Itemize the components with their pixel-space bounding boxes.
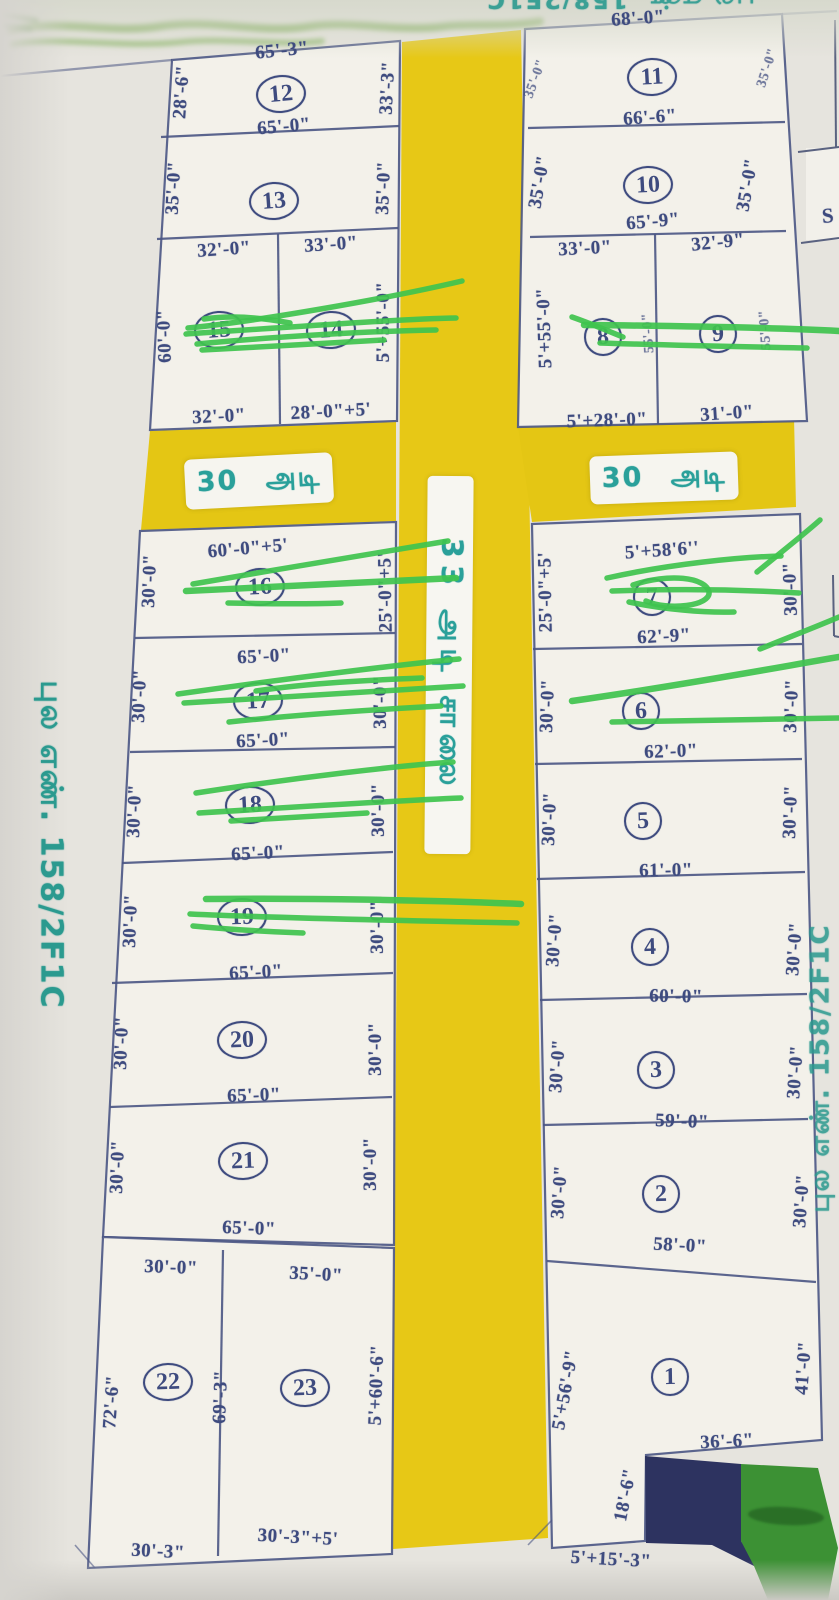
p9-right-dim: 55'-0" xyxy=(757,309,776,350)
p3-bottom-dim: 59'-0" xyxy=(655,1110,709,1134)
p2-right-dim: 30'-0" xyxy=(789,1173,815,1228)
p22-left-dim: 72'-6" xyxy=(99,1374,125,1429)
p2-bottom-dim: 58'-0" xyxy=(653,1234,708,1259)
p17-right-dim: 30'-0" xyxy=(370,675,392,729)
p19-number-text: 19 xyxy=(230,903,255,931)
left-survey-number: புல எண். 158/2F1C xyxy=(30,681,69,1010)
p8-inner-dim: 55'-0" xyxy=(640,312,659,353)
p14-number-text: 14 xyxy=(318,316,344,345)
p10-number-text: 10 xyxy=(635,171,660,199)
p15-left-dim: 60'-0" xyxy=(153,309,177,363)
p23-top-dim: 35'-0" xyxy=(289,1263,344,1288)
p19-left-dim: 30'-0" xyxy=(119,894,143,948)
p11-number-text: 11 xyxy=(640,63,664,91)
p1-right-dim: 41'-0" xyxy=(791,1340,817,1395)
right-survey-number: புல எண். 158/2F1C xyxy=(806,923,839,1212)
p20-right-dim: 30'-0" xyxy=(365,1022,387,1076)
p6-bottom-dim: 62'-0" xyxy=(644,740,698,764)
p14-bottom-dim: 28'-0"+5' xyxy=(290,399,372,425)
p21-right-dim: 30'-0" xyxy=(360,1137,382,1191)
p19-bottom-dim: 65'-0" xyxy=(229,961,284,986)
green-structure xyxy=(741,1464,838,1600)
p21-bottom-dim: 65'-0" xyxy=(222,1217,276,1241)
p13-right-dim: 35'-0" xyxy=(372,161,396,215)
p9-bottom-dim: 31'-0" xyxy=(699,401,754,427)
p11-bottom-dim: 66'-6" xyxy=(622,105,677,131)
p7-left-dim: 25'-0"+5' xyxy=(534,551,557,632)
p4-number-text: 4 xyxy=(644,933,657,960)
p5-right-dim: 30'-0" xyxy=(779,785,803,839)
p1-inner-width-dim: 36'-6" xyxy=(700,1430,755,1455)
p9-number-text: 9 xyxy=(711,320,724,348)
cross-road-left-label: 30 அடி xyxy=(184,452,334,510)
p13-left-dim: 35'-0" xyxy=(162,161,187,216)
p6-right-dim: 30'-0" xyxy=(780,679,804,733)
p8-left-dim: 5'+55'-0" xyxy=(533,287,558,368)
p4-bottom-dim: 60'-0" xyxy=(649,986,703,1009)
p19-right-dim: 30'-0" xyxy=(367,900,389,954)
p23-bottom-dim: 30'-3"+5' xyxy=(257,1525,339,1551)
p13-number-text: 13 xyxy=(261,187,287,216)
p18-left-dim: 30'-0" xyxy=(123,784,147,838)
p17-left-dim: 30'-0" xyxy=(128,669,152,723)
p1-bottom-dim: 5'+15'-3" xyxy=(570,1547,652,1573)
p6-left-dim: 30'-0" xyxy=(536,679,560,733)
p18-number-text: 18 xyxy=(237,791,262,819)
p16-number-text: 16 xyxy=(247,573,272,601)
p14-top-dim: 33'-0" xyxy=(303,232,358,258)
p18-right-dim: 30'-0" xyxy=(368,783,390,837)
p7-right-dim: 30'-0" xyxy=(779,562,803,616)
p22-right-dim: 69'-3" xyxy=(209,1370,233,1424)
p7-bottom-dim: 62'-9" xyxy=(637,625,692,650)
p12-left-dim: 28'-6" xyxy=(169,64,195,119)
p22-bottom-dim: 30'-3" xyxy=(131,1540,186,1565)
p7-number-text: 7 xyxy=(645,583,658,611)
p8-number-text: 8 xyxy=(597,323,610,350)
p22-number-text: 22 xyxy=(156,1368,181,1396)
p12-right-dim: 33'-3" xyxy=(376,61,401,116)
p11-top-dim: 68'-0" xyxy=(610,6,665,32)
right-edge-marks xyxy=(798,20,839,637)
cross-road-right-label: 30 அடி xyxy=(589,451,739,504)
p2-left-dim: 30'-0" xyxy=(547,1164,573,1219)
p21-left-dim: 30'-0" xyxy=(106,1140,130,1194)
p18-bottom-dim: 65'-0" xyxy=(231,842,286,867)
p5-bottom-dim: 61'-0" xyxy=(639,860,693,883)
p17-top-dim: 65'-0" xyxy=(237,645,292,670)
p17-number-text: 17 xyxy=(245,687,270,715)
p12-number-text: 12 xyxy=(268,80,294,109)
p3-left-dim: 30'-0" xyxy=(545,1038,571,1093)
p15-number-text: 15 xyxy=(206,316,232,345)
p8-bottom-dim: 5'+28'-0" xyxy=(566,409,647,434)
p14-right-dim: 5'+55'-0" xyxy=(373,282,395,363)
p10-bottom-dim: 65'-9" xyxy=(625,209,680,236)
p4-left-dim: 30'-0" xyxy=(542,912,568,967)
p5-number-text: 5 xyxy=(637,807,650,834)
p2-number-text: 2 xyxy=(655,1180,667,1207)
plot-layout-sheet: 30 அடி 30 அடி 33 அடி சாலை புல எண். 158/2… xyxy=(0,0,839,1600)
p5-left-dim: 30'-0" xyxy=(538,792,562,846)
corner-letter: S xyxy=(821,203,835,229)
corner-structures xyxy=(645,1456,838,1600)
p23-number-text: 23 xyxy=(293,1374,318,1402)
p12-bottom-dim: 65'-0" xyxy=(256,114,311,141)
p4-right-dim: 30'-0" xyxy=(782,921,808,976)
p23-right-dim: 5'+60'-6" xyxy=(365,1344,390,1425)
p20-left-dim: 30'-0" xyxy=(110,1016,134,1070)
p20-bottom-dim: 65'-0" xyxy=(227,1084,281,1108)
main-road-label: 33 அடி சாலை xyxy=(424,476,473,854)
main-road-label-text: 33 அடி சாலை xyxy=(429,538,469,793)
p22-top-dim: 30'-0" xyxy=(144,1256,198,1280)
p20-number-text: 20 xyxy=(230,1026,255,1054)
cross-road-right-label-text: 30 அடி xyxy=(601,458,727,497)
p3-right-dim: 30'-0" xyxy=(783,1044,809,1099)
p15-bottom-dim: 32'-0" xyxy=(192,405,247,430)
p1-number-text: 1 xyxy=(664,1363,676,1390)
p8-top-dim: 33'-0" xyxy=(558,237,613,262)
p15-top-dim: 32'-0" xyxy=(196,237,251,263)
p3-number-text: 3 xyxy=(650,1056,662,1083)
p6-number-text: 6 xyxy=(635,697,648,724)
p17-bottom-dim: 65'-0" xyxy=(236,729,291,754)
cross-road-left-label-text: 30 அடி xyxy=(196,460,322,501)
p16-left-dim: 30'-0" xyxy=(138,554,162,608)
p16-right-dim: 25'-0"+5' xyxy=(374,551,397,632)
p21-number-text: 21 xyxy=(231,1147,256,1175)
